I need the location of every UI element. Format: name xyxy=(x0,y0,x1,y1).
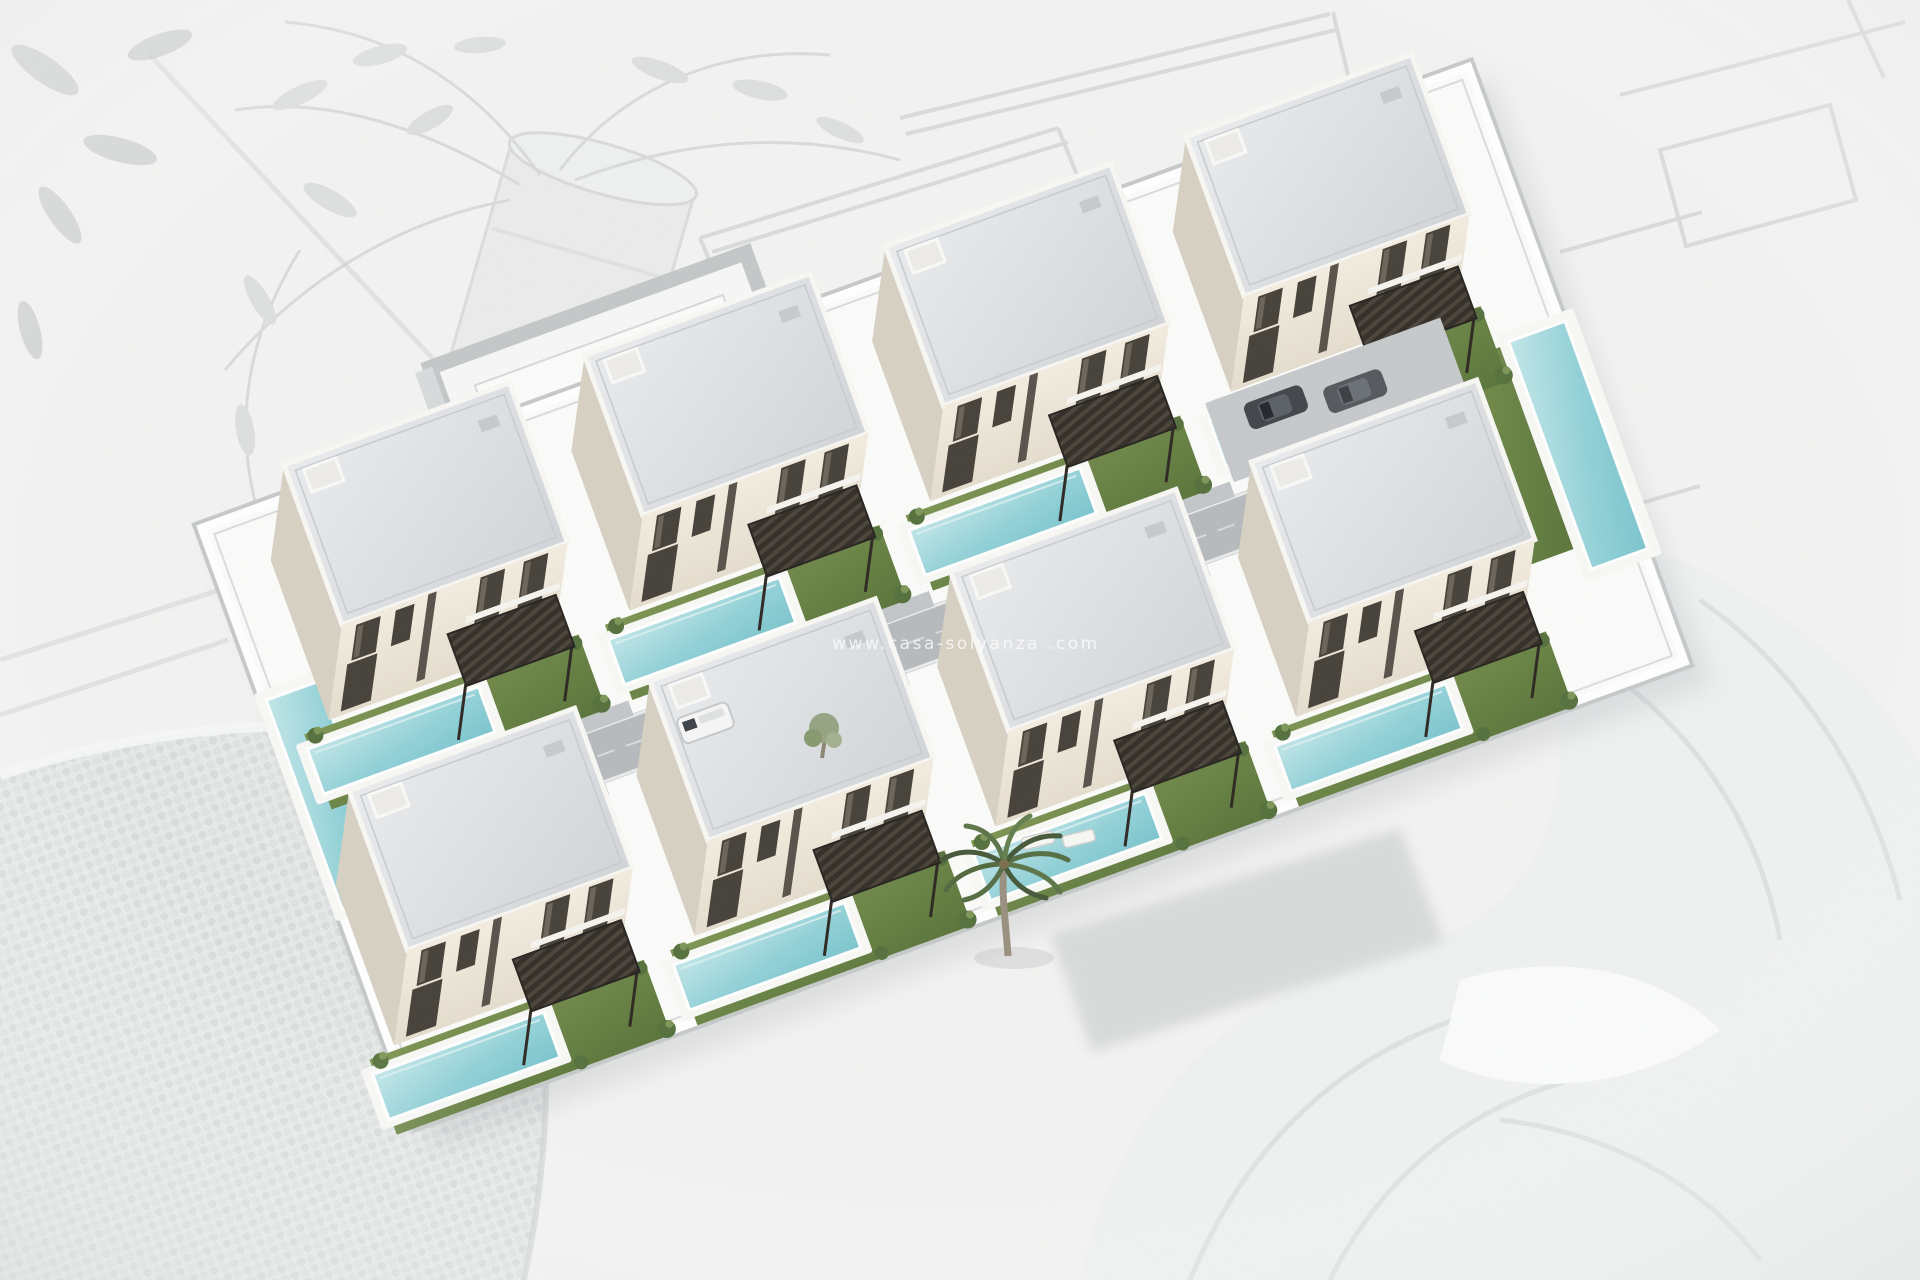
vignette xyxy=(0,0,1920,1280)
render-image: www.casa-solyanza .com xyxy=(0,0,1920,1280)
